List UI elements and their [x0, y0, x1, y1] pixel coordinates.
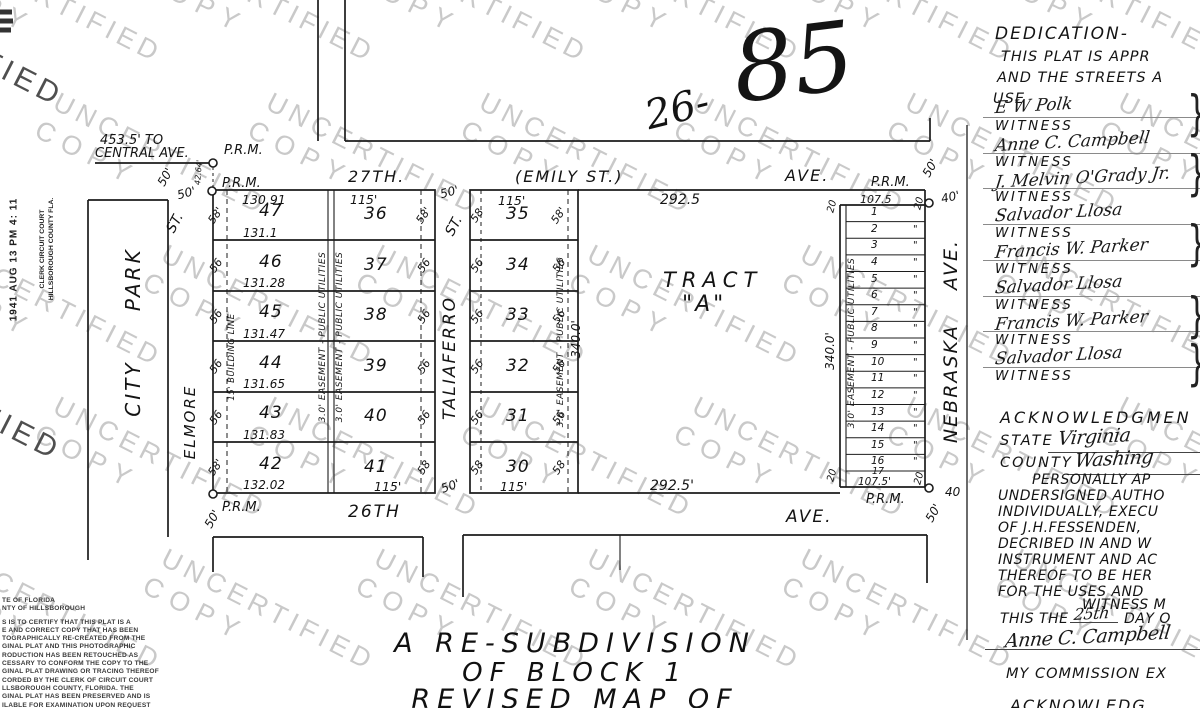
lot-row: 1	[847, 205, 923, 222]
lot-row: 46 131.28	[213, 241, 325, 292]
lot-row: 41	[330, 443, 410, 494]
tick-value: 56	[550, 256, 569, 275]
ditto-mark: "	[913, 407, 918, 418]
certification-body: S IS TO CERTIFY THAT THIS PLAT IS AE AND…	[2, 619, 159, 708]
lot-number: 35	[506, 204, 530, 224]
tract-letter: "A"	[682, 292, 726, 317]
lot-number: 30	[506, 457, 530, 477]
ditto-mark: "	[913, 373, 918, 384]
lot-row: 4 "	[847, 255, 923, 272]
central-ave-distance-line2: CENTRAL AVE.	[95, 146, 189, 161]
brace-glyph: }	[1187, 85, 1200, 141]
tick: 56	[468, 241, 486, 292]
lot-number: 1	[871, 206, 878, 218]
signature-row: Salvador Llosa WITNESS	[983, 203, 1200, 239]
certification-line: TOGRAPHICALLY RE-CREATED FROM THE	[2, 635, 159, 643]
tick-value: 58	[415, 458, 434, 477]
lot-row: 44 131.65	[213, 342, 325, 393]
ditto-mark: "	[913, 357, 918, 368]
street-26th-ave-suffix: AVE.	[786, 507, 833, 527]
date-underline	[1070, 622, 1118, 623]
state-value-handwritten: Virginia	[1057, 424, 1132, 450]
case-number: 85	[727, 1, 860, 125]
ditto-mark: "	[913, 257, 918, 268]
certification-line: CESSARY TO CONFORM THE COPY TO THE	[2, 660, 159, 668]
acknowledgment-line: UNDERSIGNED AUTHO	[998, 488, 1165, 504]
tick-value: 58	[550, 458, 569, 477]
lot-number: 42	[259, 454, 283, 474]
dim-340-west: 340.0'	[569, 309, 583, 369]
tick: 58	[414, 443, 434, 494]
certification-line: GINAL PLAT DRAWING OR TRACING THEREOF	[2, 668, 159, 676]
certification-line: GINAL PLAT HAS BEEN PRESERVED AND IS	[2, 693, 159, 701]
prm-label: P.R.M.	[866, 492, 905, 507]
lot-number: 15	[871, 439, 884, 451]
lot-number: 33	[506, 305, 530, 325]
east-strip-lots: 1 2 " 3 " 4 " 5 " 6	[847, 205, 923, 471]
center-block-lots: 35 34 33 32 31 30	[474, 190, 558, 493]
certification-line: GINAL PLAT AND THIS PHOTOGRAPHIC	[2, 643, 159, 651]
lot-number: 4	[871, 256, 878, 268]
lot-row: 15 "	[847, 438, 923, 455]
lot-number: 8	[871, 322, 878, 334]
witness-signature-list: E W Polk WITNESS Anne C. Campbell WITNES…	[983, 96, 1200, 382]
lot-row: 36	[330, 190, 410, 241]
clerk-stamp-office-line2: HILLSBOROUGH COUNTY FLA.	[47, 190, 56, 308]
tick: 56	[468, 392, 486, 443]
certification-line: RODUCTION HAS BEEN RETOUCHED AS	[2, 652, 159, 660]
signature-row: E W Polk WITNESS	[983, 96, 1200, 132]
tick: 58	[550, 443, 568, 494]
tick-value: 56	[415, 307, 434, 326]
signature-row: J. Melvin O'Grady Jr. WITNESS	[983, 168, 1200, 204]
signature: Salvador Llosa	[994, 343, 1124, 370]
lot-row: 14 "	[847, 421, 923, 438]
tick: 56	[206, 342, 226, 393]
dim-292-5-top: 292.5	[660, 192, 700, 208]
street-26th: 26TH	[348, 502, 401, 522]
tick: 58'	[414, 190, 434, 241]
tract-label: TRACT	[663, 268, 762, 292]
tick: 58	[468, 190, 486, 241]
lot-number: 3	[871, 239, 878, 251]
ditto-mark: "	[913, 290, 918, 301]
lot-length: 131.28	[243, 276, 285, 290]
signature-row: Anne C. Campbell WITNESS	[983, 132, 1200, 168]
tick-value: 56	[207, 307, 226, 326]
lot-row: 2 "	[847, 222, 923, 239]
ditto-mark: "	[913, 307, 918, 318]
center-block-west-ticks: 585656565658	[468, 190, 486, 493]
west-block-west-ticks: 58'5656565658'	[206, 190, 226, 493]
lot-length: 131.65	[243, 377, 285, 391]
tick-value: 56	[468, 357, 487, 376]
lot-number: 12	[871, 389, 884, 401]
clerk-stamp-office-line1: CLERK CIRCUIT COURT	[38, 190, 47, 308]
tick-value: 56	[550, 307, 569, 326]
lot-row: 43 131.83	[213, 392, 325, 443]
commission-line: MY COMMISSION EX	[1006, 666, 1167, 682]
lot-number: 38	[364, 305, 388, 325]
center-block-east-ticks: 58'5656565658	[550, 190, 568, 493]
prm-label: P.R.M.	[871, 175, 910, 190]
tick-value: 56	[550, 408, 569, 427]
tick-value: 58	[468, 458, 487, 477]
lot-row: 12 "	[847, 388, 923, 405]
prm-label: P.R.M.	[222, 176, 261, 191]
west-block-col-a: 47 131.1 46 131.28 45 131.47 44 131.65 4…	[213, 190, 325, 493]
witness-label: WITNESS	[995, 368, 1073, 384]
lot-length: 131.83	[243, 428, 285, 442]
clerk-stamp-office: CLERK CIRCUIT COURT HILLSBOROUGH COUNTY …	[38, 190, 56, 308]
certification-stamp: TE OF FLORIDA NTY OF HILLSBOROUGH S IS T…	[2, 597, 159, 708]
lot-number: 46	[259, 252, 283, 272]
certification-header1: TE OF FLORIDA	[2, 597, 159, 605]
prm-label: P.R.M.	[224, 143, 263, 158]
certification-header2: NTY OF HILLSBOROUGH	[2, 605, 159, 613]
ditto-mark: "	[913, 274, 918, 285]
lot-row: 10 "	[847, 355, 923, 372]
ditto-mark: "	[913, 240, 918, 251]
lot-row: 39	[330, 342, 410, 393]
street-emily: (EMILY ST.)	[515, 167, 623, 186]
tick-value: 58'	[206, 205, 226, 226]
tick: 56	[414, 392, 434, 443]
lot-row: 35	[474, 190, 558, 241]
street-taliaferro: TALIAFERRO	[440, 238, 460, 478]
state-label: STATE	[1000, 433, 1054, 449]
dim-292-5-bottom: 292.5'	[650, 478, 694, 494]
tick: 56	[414, 291, 434, 342]
lot-row: 3 "	[847, 238, 923, 255]
lot-number: 44	[259, 353, 283, 373]
lot-number: 7	[871, 306, 878, 318]
plat-title-line1: A RE-SUBDIVISION	[394, 628, 756, 659]
tick-value: 56	[468, 256, 487, 275]
tick: 56	[468, 342, 486, 393]
signature-row: Salvador Llosa WITNESS	[983, 346, 1200, 382]
tick-value: 58	[468, 206, 487, 225]
lot-row: 7 "	[847, 305, 923, 322]
signature: Salvador Llosa	[994, 271, 1124, 298]
lot-number: 6	[871, 289, 878, 301]
ditto-mark: "	[913, 423, 918, 434]
tick: 56	[206, 241, 226, 292]
lot-length: 131.1	[243, 226, 277, 240]
lot-row: 13 "	[847, 405, 923, 422]
plat-document: UNCERTIFIEDCOPYUNCERTIFIEDCOPYUNCERTIFIE…	[0, 0, 1200, 708]
lot-number: 2	[871, 223, 878, 235]
brace-glyph: }	[1187, 215, 1200, 271]
tick: 56	[550, 392, 568, 443]
lot-row: 33	[474, 291, 558, 342]
ditto-mark: "	[913, 323, 918, 334]
tick-value: 56	[415, 408, 434, 427]
dedication-title: DEDICATION-	[995, 24, 1129, 44]
tick-value: 58'	[414, 205, 434, 226]
dim-340-east: 340.0'	[823, 321, 837, 381]
lot-number: 36	[364, 204, 388, 224]
lot-number: 14	[871, 422, 884, 434]
tick-value: 56	[468, 307, 487, 326]
lot-row: 42 132.02	[213, 443, 325, 494]
lot-row: 40	[330, 392, 410, 443]
ditto-mark: "	[913, 224, 918, 235]
lot-number: 34	[506, 255, 530, 275]
signature-row: Salvador Llosa WITNESS	[983, 275, 1200, 311]
acknowledgment-body: UNDERSIGNED AUTHOINDIVIDUALLY, EXECUOF J…	[998, 488, 1165, 600]
tick: 56	[550, 342, 568, 393]
tick: 56	[550, 241, 568, 292]
brace-glyph: }	[1187, 335, 1200, 391]
dedication-line2: AND THE STREETS A	[997, 70, 1163, 86]
lot-number: 5	[871, 273, 878, 285]
city-park-label: CITY PARK	[121, 212, 145, 452]
lot-number: 39	[364, 356, 388, 376]
acknowledgment-line: INDIVIDUALLY, EXECU	[998, 504, 1165, 520]
lot-number: 41	[364, 457, 388, 477]
acknowledgment-title: ACKNOWLEDGMEN	[1000, 408, 1192, 427]
lot-row: 45 131.47	[213, 291, 325, 342]
lot-row: 6 "	[847, 288, 923, 305]
lot-row: 47 131.1	[213, 190, 325, 241]
tick-value: 58'	[206, 457, 226, 478]
prm-label: P.R.M.	[222, 500, 261, 515]
tick: 56	[414, 241, 434, 292]
ditto-mark: "	[913, 340, 918, 351]
tick: 56	[550, 291, 568, 342]
lot-number: 45	[259, 302, 283, 322]
acknowledgment-line: INSTRUMENT AND AC	[998, 552, 1165, 568]
tick-value: 56	[415, 357, 434, 376]
tick-value: 56	[207, 408, 226, 427]
ditto-mark: "	[913, 390, 918, 401]
tick: 56	[206, 392, 226, 443]
tick: 58'	[206, 443, 226, 494]
acknowledgment-line: THEREOF TO BE HER	[998, 568, 1165, 584]
plat-title-line3: REVISED MAP OF	[411, 684, 738, 708]
tick-value: 56	[415, 256, 434, 275]
lot-number: 32	[506, 356, 530, 376]
tick: 56	[414, 342, 434, 393]
lot-number: 13	[871, 406, 884, 418]
tick-value: 56	[207, 256, 226, 275]
lot-number: 9	[871, 339, 878, 351]
lot-row: 34	[474, 241, 558, 292]
lot-number: 31	[506, 406, 530, 426]
lot-row: 32	[474, 342, 558, 393]
lot-number: 37	[364, 255, 388, 275]
partial-bottom-line: ACKNOWLEDG	[1010, 696, 1147, 708]
street-elmore: ELMORE	[181, 367, 199, 477]
certification-line: LLSBOROUGH COUNTY, FLORIDA. THE	[2, 685, 159, 693]
tick-value: 58'	[549, 205, 569, 226]
street-27th-ave-suffix: AVE.	[785, 166, 829, 185]
lot-number: 10	[871, 356, 884, 368]
county-label: COUNTY	[1000, 455, 1073, 471]
width-40: 40	[945, 485, 960, 499]
brace-glyph: }	[1187, 145, 1200, 201]
tick-value: 56	[468, 408, 487, 427]
acknowledgment-line: OF J.H.FESSENDEN,	[998, 520, 1165, 536]
tick: 58'	[206, 190, 226, 241]
lot-number: 11	[871, 372, 884, 384]
lot-number: 16	[871, 455, 884, 467]
tick: 58	[468, 443, 486, 494]
lot-number: 43	[259, 403, 283, 423]
clerk-stamp-date: 1941 AUG 13 PM 4: 11	[9, 185, 20, 335]
dedication-line1: THIS PLAT IS APPR	[1001, 49, 1151, 65]
ditto-mark: "	[913, 456, 918, 467]
dim-107-5-bottom: 107.5'	[858, 476, 891, 488]
signature-row: Francis W. Parker WITNESS	[983, 239, 1200, 275]
tick-value: 56	[207, 357, 226, 376]
county-value-handwritten: Washing	[1074, 446, 1155, 472]
certification-line: ILABLE FOR EXAMINATION UPON REQUEST	[2, 702, 159, 708]
lot-number: 47	[259, 201, 283, 221]
acknowledgment-indent-line: PERSONALLY AP	[1032, 472, 1151, 488]
west-block-col-b: 36 37 38 39 40 41	[330, 190, 410, 493]
street-27th: 27TH.	[348, 167, 405, 186]
certification-line: E AND CORRECT COPY THAT HAS BEEN	[2, 627, 159, 635]
signature: E W Polk	[994, 94, 1074, 118]
lot-row: 38	[330, 291, 410, 342]
lot-length: 132.02	[243, 478, 285, 492]
lot-row: 9 "	[847, 338, 923, 355]
ditto-mark: "	[913, 440, 918, 451]
tick: 58'	[550, 190, 568, 241]
street-nebraska: NEBRASKA AVE.	[940, 191, 962, 491]
notary-underline	[985, 649, 1200, 650]
certification-line: S IS TO CERTIFY THAT THIS PLAT IS A	[2, 619, 159, 627]
lot-row: 16 "	[847, 454, 923, 471]
certification-line: CORDED BY THE CLERK OF CIRCUIT COURT	[2, 677, 159, 685]
lot-row: 37	[330, 241, 410, 292]
date-value-handwritten: 25th	[1073, 603, 1110, 624]
lot-length: 131.47	[243, 327, 285, 341]
signature: Salvador Llosa	[994, 200, 1124, 227]
acknowledgment-line: DECRIBED IN AND W	[998, 536, 1165, 552]
tick-value: 56	[550, 357, 569, 376]
tick: 56	[468, 291, 486, 342]
west-block-east-ticks: 58'5656565658	[414, 190, 434, 493]
signature-row: Francis W. Parker WITNESS	[983, 311, 1200, 347]
lot-number: 40	[364, 406, 388, 426]
tick: 56	[206, 291, 226, 342]
lot-row: 11 "	[847, 371, 923, 388]
lot-row: 30	[474, 443, 558, 494]
lot-row: 8 "	[847, 321, 923, 338]
date-line-pre: THIS THE	[1000, 611, 1068, 627]
lot-row: 5 "	[847, 272, 923, 289]
lot-row: 31	[474, 392, 558, 443]
